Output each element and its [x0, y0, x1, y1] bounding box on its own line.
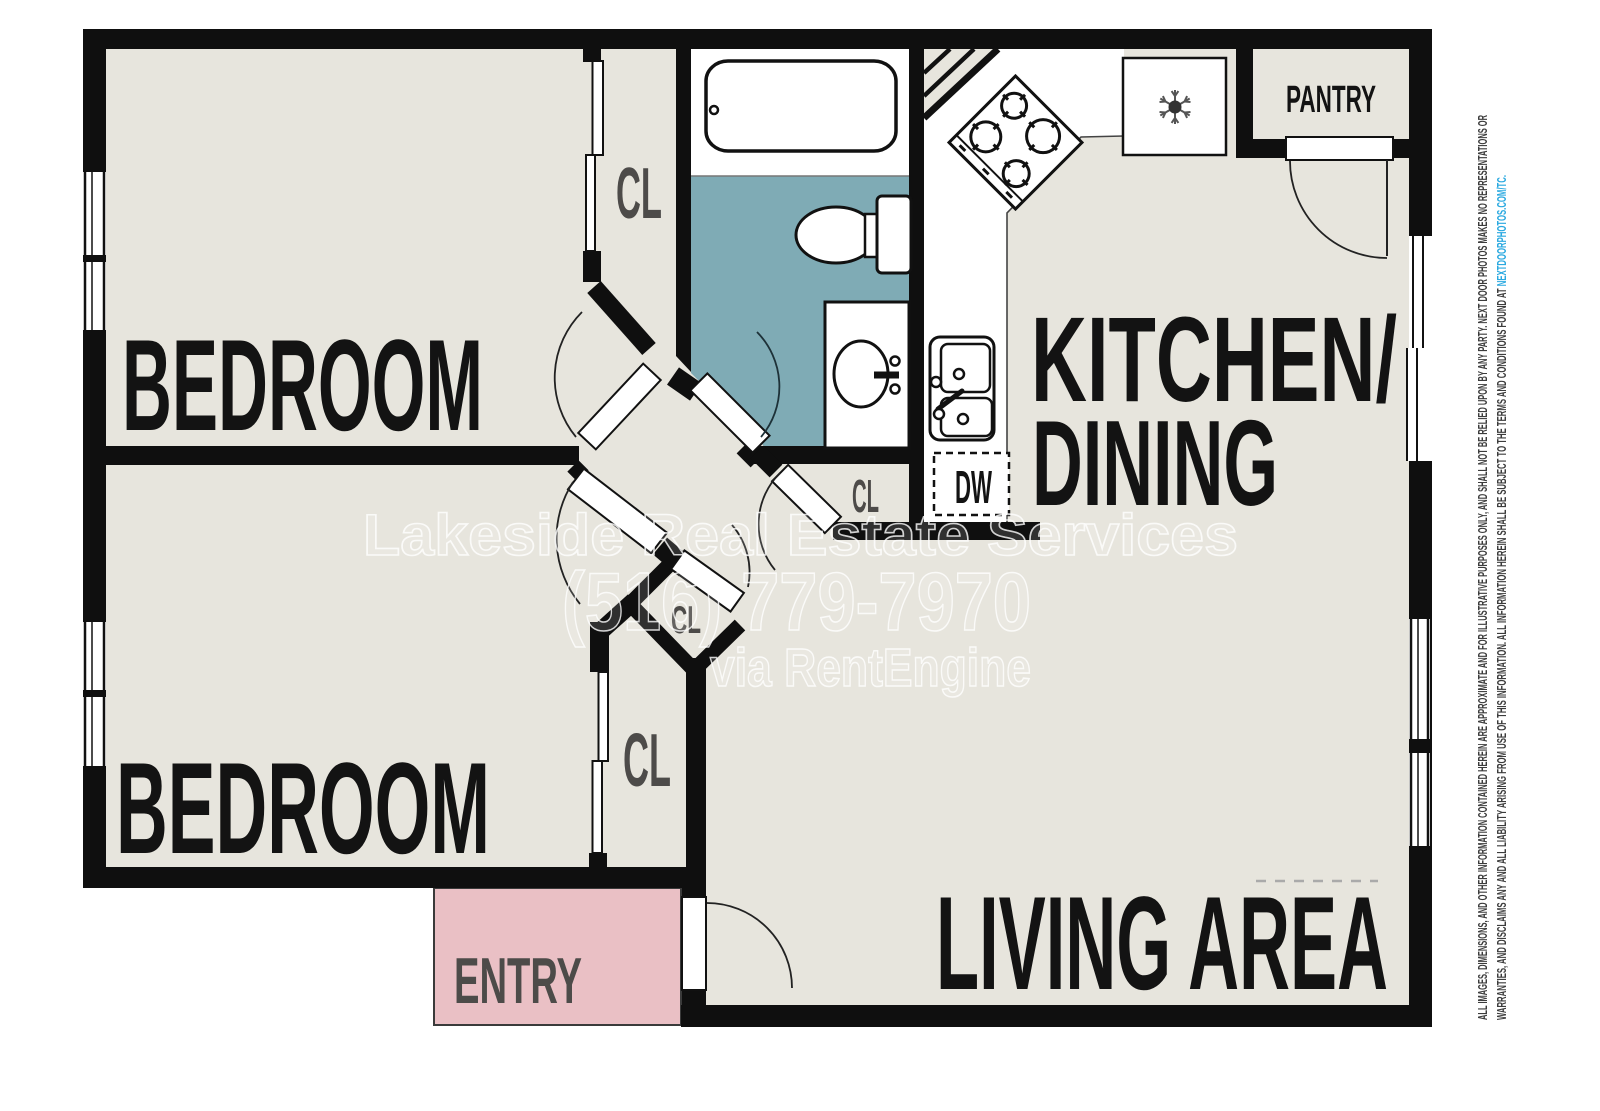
- svg-text:CL: CL: [616, 154, 662, 234]
- svg-text:CL: CL: [623, 718, 671, 802]
- svg-text:WARRANTIES, AND DISCLAIMS ANY: WARRANTIES, AND DISCLAIMS ANY AND ALL LI…: [1495, 175, 1509, 1020]
- svg-text:via RentEngine: via RentEngine: [710, 638, 1031, 698]
- svg-text:ENTRY: ENTRY: [454, 944, 582, 1017]
- svg-text:LIVING AREA: LIVING AREA: [936, 870, 1388, 1018]
- svg-text:BEDROOM: BEDROOM: [116, 735, 490, 881]
- svg-text:ALL IMAGES, DIMENSIONS, AND OT: ALL IMAGES, DIMENSIONS, AND OTHER INFORM…: [1476, 115, 1490, 1020]
- svg-text:(516) 779-7970: (516) 779-7970: [562, 555, 1031, 648]
- svg-text:BEDROOM: BEDROOM: [122, 312, 483, 458]
- svg-text:PANTRY: PANTRY: [1286, 79, 1376, 121]
